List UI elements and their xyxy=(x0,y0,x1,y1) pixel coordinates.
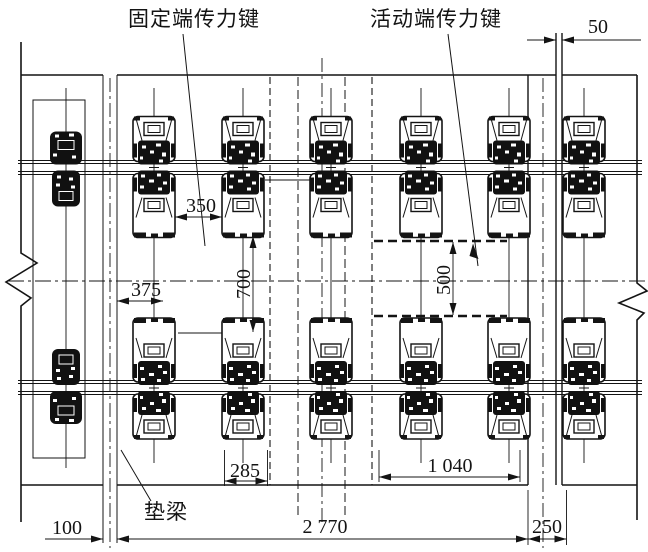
dim-250: 250 xyxy=(532,516,562,538)
dim-1040: 1 040 xyxy=(428,455,473,477)
dim-50: 50 xyxy=(588,16,608,38)
bearing xyxy=(222,117,264,238)
bearing xyxy=(310,117,352,238)
bearings-row2 xyxy=(50,318,605,439)
movable-key-label: 活动端传力键 xyxy=(370,7,502,31)
bearing xyxy=(222,318,264,439)
bearing xyxy=(488,117,530,238)
paper-background xyxy=(0,0,648,552)
bearing xyxy=(563,117,605,238)
dim-500: 500 xyxy=(433,265,455,295)
dim-375: 375 xyxy=(131,279,161,301)
dim-700: 700 xyxy=(233,269,255,299)
bolster-label: 垫梁 xyxy=(144,500,188,524)
dim-100: 100 xyxy=(52,517,82,539)
bearing xyxy=(133,117,175,238)
bearing-layout-drawing: 固定端传力键 活动端传力键 垫梁 50 350 375 700 500 285 xyxy=(0,0,648,552)
bearing xyxy=(563,318,605,439)
dim-285: 285 xyxy=(230,460,260,482)
bearings-row1 xyxy=(50,117,605,238)
dim-350: 350 xyxy=(186,195,216,217)
bearing xyxy=(400,318,442,439)
engineering-drawing-page: 固定端传力键 活动端传力键 垫梁 50 350 375 700 500 285 xyxy=(0,0,648,552)
fixed-key-label: 固定端传力键 xyxy=(128,7,260,31)
dim-2770: 2 770 xyxy=(303,516,348,538)
bearing xyxy=(310,318,352,439)
bearing xyxy=(488,318,530,439)
bearing xyxy=(400,117,442,238)
bearing xyxy=(133,318,175,439)
